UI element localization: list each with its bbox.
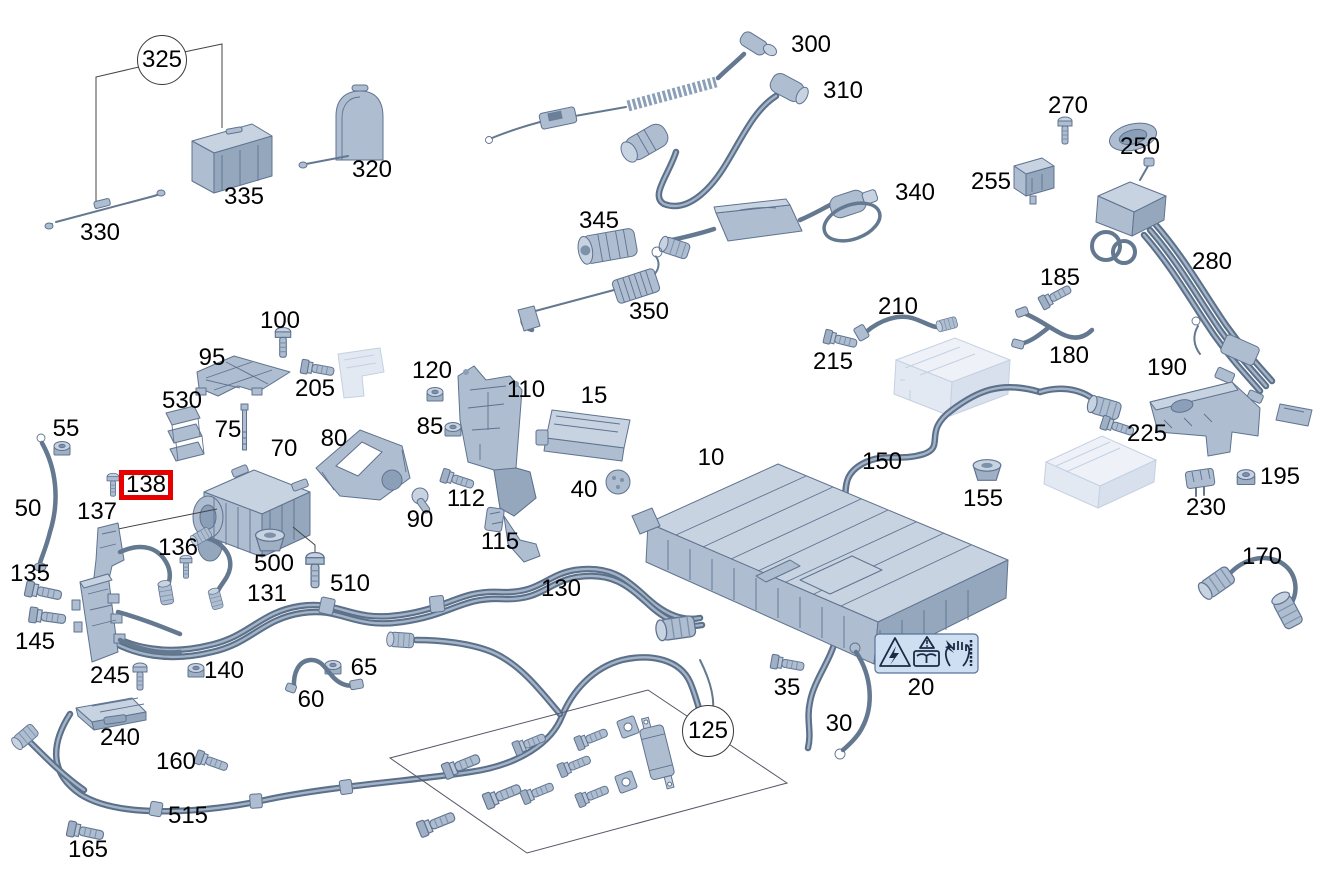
part-label-310: 310 [823, 79, 863, 103]
part-label-350: 350 [629, 300, 669, 324]
part-300-graphic [486, 30, 779, 144]
part-label-170: 170 [1242, 545, 1282, 569]
part-label-135: 135 [10, 562, 50, 586]
fuse-element [637, 714, 678, 792]
part-510-graphic [306, 553, 324, 588]
part-245-graphic [133, 663, 147, 690]
part-label-195: 195 [1260, 465, 1300, 489]
callout-circle-325: 325 [137, 35, 187, 85]
part-label-30: 30 [826, 712, 853, 736]
part-280-graphic [1092, 158, 1312, 426]
part-label-185: 185 [1040, 266, 1080, 290]
part-label-65: 65 [351, 656, 378, 680]
part-75-graphic [241, 404, 248, 450]
part-label-345: 345 [579, 209, 619, 233]
part-label-530: 530 [162, 389, 202, 413]
part-15-graphic [536, 410, 630, 461]
part-70-graphic [193, 464, 310, 561]
part-35-graphic [770, 654, 805, 674]
part-120-graphic [427, 388, 443, 402]
part-label-136: 136 [158, 536, 198, 560]
part-label-60: 60 [298, 688, 325, 712]
part-label-500: 500 [254, 552, 294, 576]
part-label-140: 140 [204, 659, 244, 683]
part-label-155: 155 [963, 487, 1003, 511]
part-label-320: 320 [352, 158, 392, 182]
part-label-130: 130 [541, 577, 581, 601]
part-label-210: 210 [878, 295, 918, 319]
part-label-190: 190 [1147, 356, 1187, 380]
part-label-90: 90 [407, 508, 434, 532]
part-label-137: 137 [77, 500, 117, 524]
part-310-graphic [617, 71, 811, 206]
part-label-230: 230 [1186, 496, 1226, 520]
ghost-bracket-205 [338, 348, 384, 398]
part-label-150: 150 [862, 450, 902, 474]
highlighted-part-138-box: 138 [119, 470, 173, 500]
part-label-120: 120 [412, 359, 452, 383]
part-label-112: 112 [447, 487, 485, 511]
part-label-35: 35 [774, 676, 801, 700]
part-270-graphic [1058, 117, 1072, 144]
part-label-245: 245 [90, 664, 130, 688]
callout-circle-125: 125 [682, 705, 734, 757]
part-label-510: 510 [330, 572, 370, 596]
part-340-graphic [652, 184, 885, 259]
part-label-165: 165 [68, 838, 108, 862]
part-label-131: 131 [247, 582, 287, 606]
part-label-20: 20 [908, 676, 935, 700]
part-label-110: 110 [507, 378, 545, 402]
part-155-graphic [973, 460, 1001, 481]
part-label-145: 145 [15, 630, 55, 654]
warning-label-graphic [875, 634, 978, 673]
part-label-100: 100 [260, 309, 300, 333]
part-255-graphic [1014, 158, 1054, 204]
part-label-75: 75 [215, 418, 242, 442]
part-label-215: 215 [813, 350, 853, 374]
part-label-15: 15 [581, 384, 608, 408]
part-195-graphic [1237, 470, 1255, 485]
part-85-graphic [445, 423, 461, 437]
part-label-80: 80 [321, 427, 348, 451]
part-label-240: 240 [100, 726, 140, 750]
part-label-205: 205 [295, 377, 335, 401]
part-label-95: 95 [199, 346, 226, 370]
part-label-270: 270 [1048, 94, 1088, 118]
part-210-graphic [853, 316, 958, 341]
part-label-335: 335 [224, 185, 264, 209]
part-label-225: 225 [1127, 422, 1167, 446]
part-138-screw-graphic [107, 473, 119, 496]
part-label-55: 55 [53, 417, 80, 441]
part-230-graphic [1185, 468, 1215, 496]
part-label-50: 50 [15, 497, 42, 521]
part-40-graphic [606, 470, 630, 494]
part-label-255: 255 [971, 170, 1011, 194]
ghost-power-electronics-module [894, 338, 1010, 416]
part-label-70: 70 [271, 437, 298, 461]
part-label-300: 300 [791, 33, 831, 57]
part-label-40: 40 [571, 478, 598, 502]
part-label-330: 330 [80, 221, 120, 245]
part-label-160: 160 [156, 750, 196, 774]
part-55-graphic [54, 442, 70, 456]
part-500-graphic [256, 529, 285, 551]
parts-diagram: 10 15 20 30 35 40 50 55 60 65 70 75 80 8… [0, 0, 1326, 881]
part-label-515: 515 [168, 804, 208, 828]
part-label-180: 180 [1049, 344, 1089, 368]
part-140-graphic [188, 664, 204, 678]
part-label-340: 340 [895, 181, 935, 205]
part-label-250: 250 [1120, 135, 1160, 159]
part-label-85: 85 [417, 415, 444, 439]
part-530-graphic [166, 406, 204, 461]
part-145-graphic [28, 607, 66, 627]
part-label-10: 10 [698, 446, 725, 470]
part-30-graphic [835, 643, 870, 759]
part-160-graphic [194, 750, 230, 774]
part-label-280: 280 [1192, 250, 1232, 274]
part-label-115: 115 [481, 530, 519, 554]
